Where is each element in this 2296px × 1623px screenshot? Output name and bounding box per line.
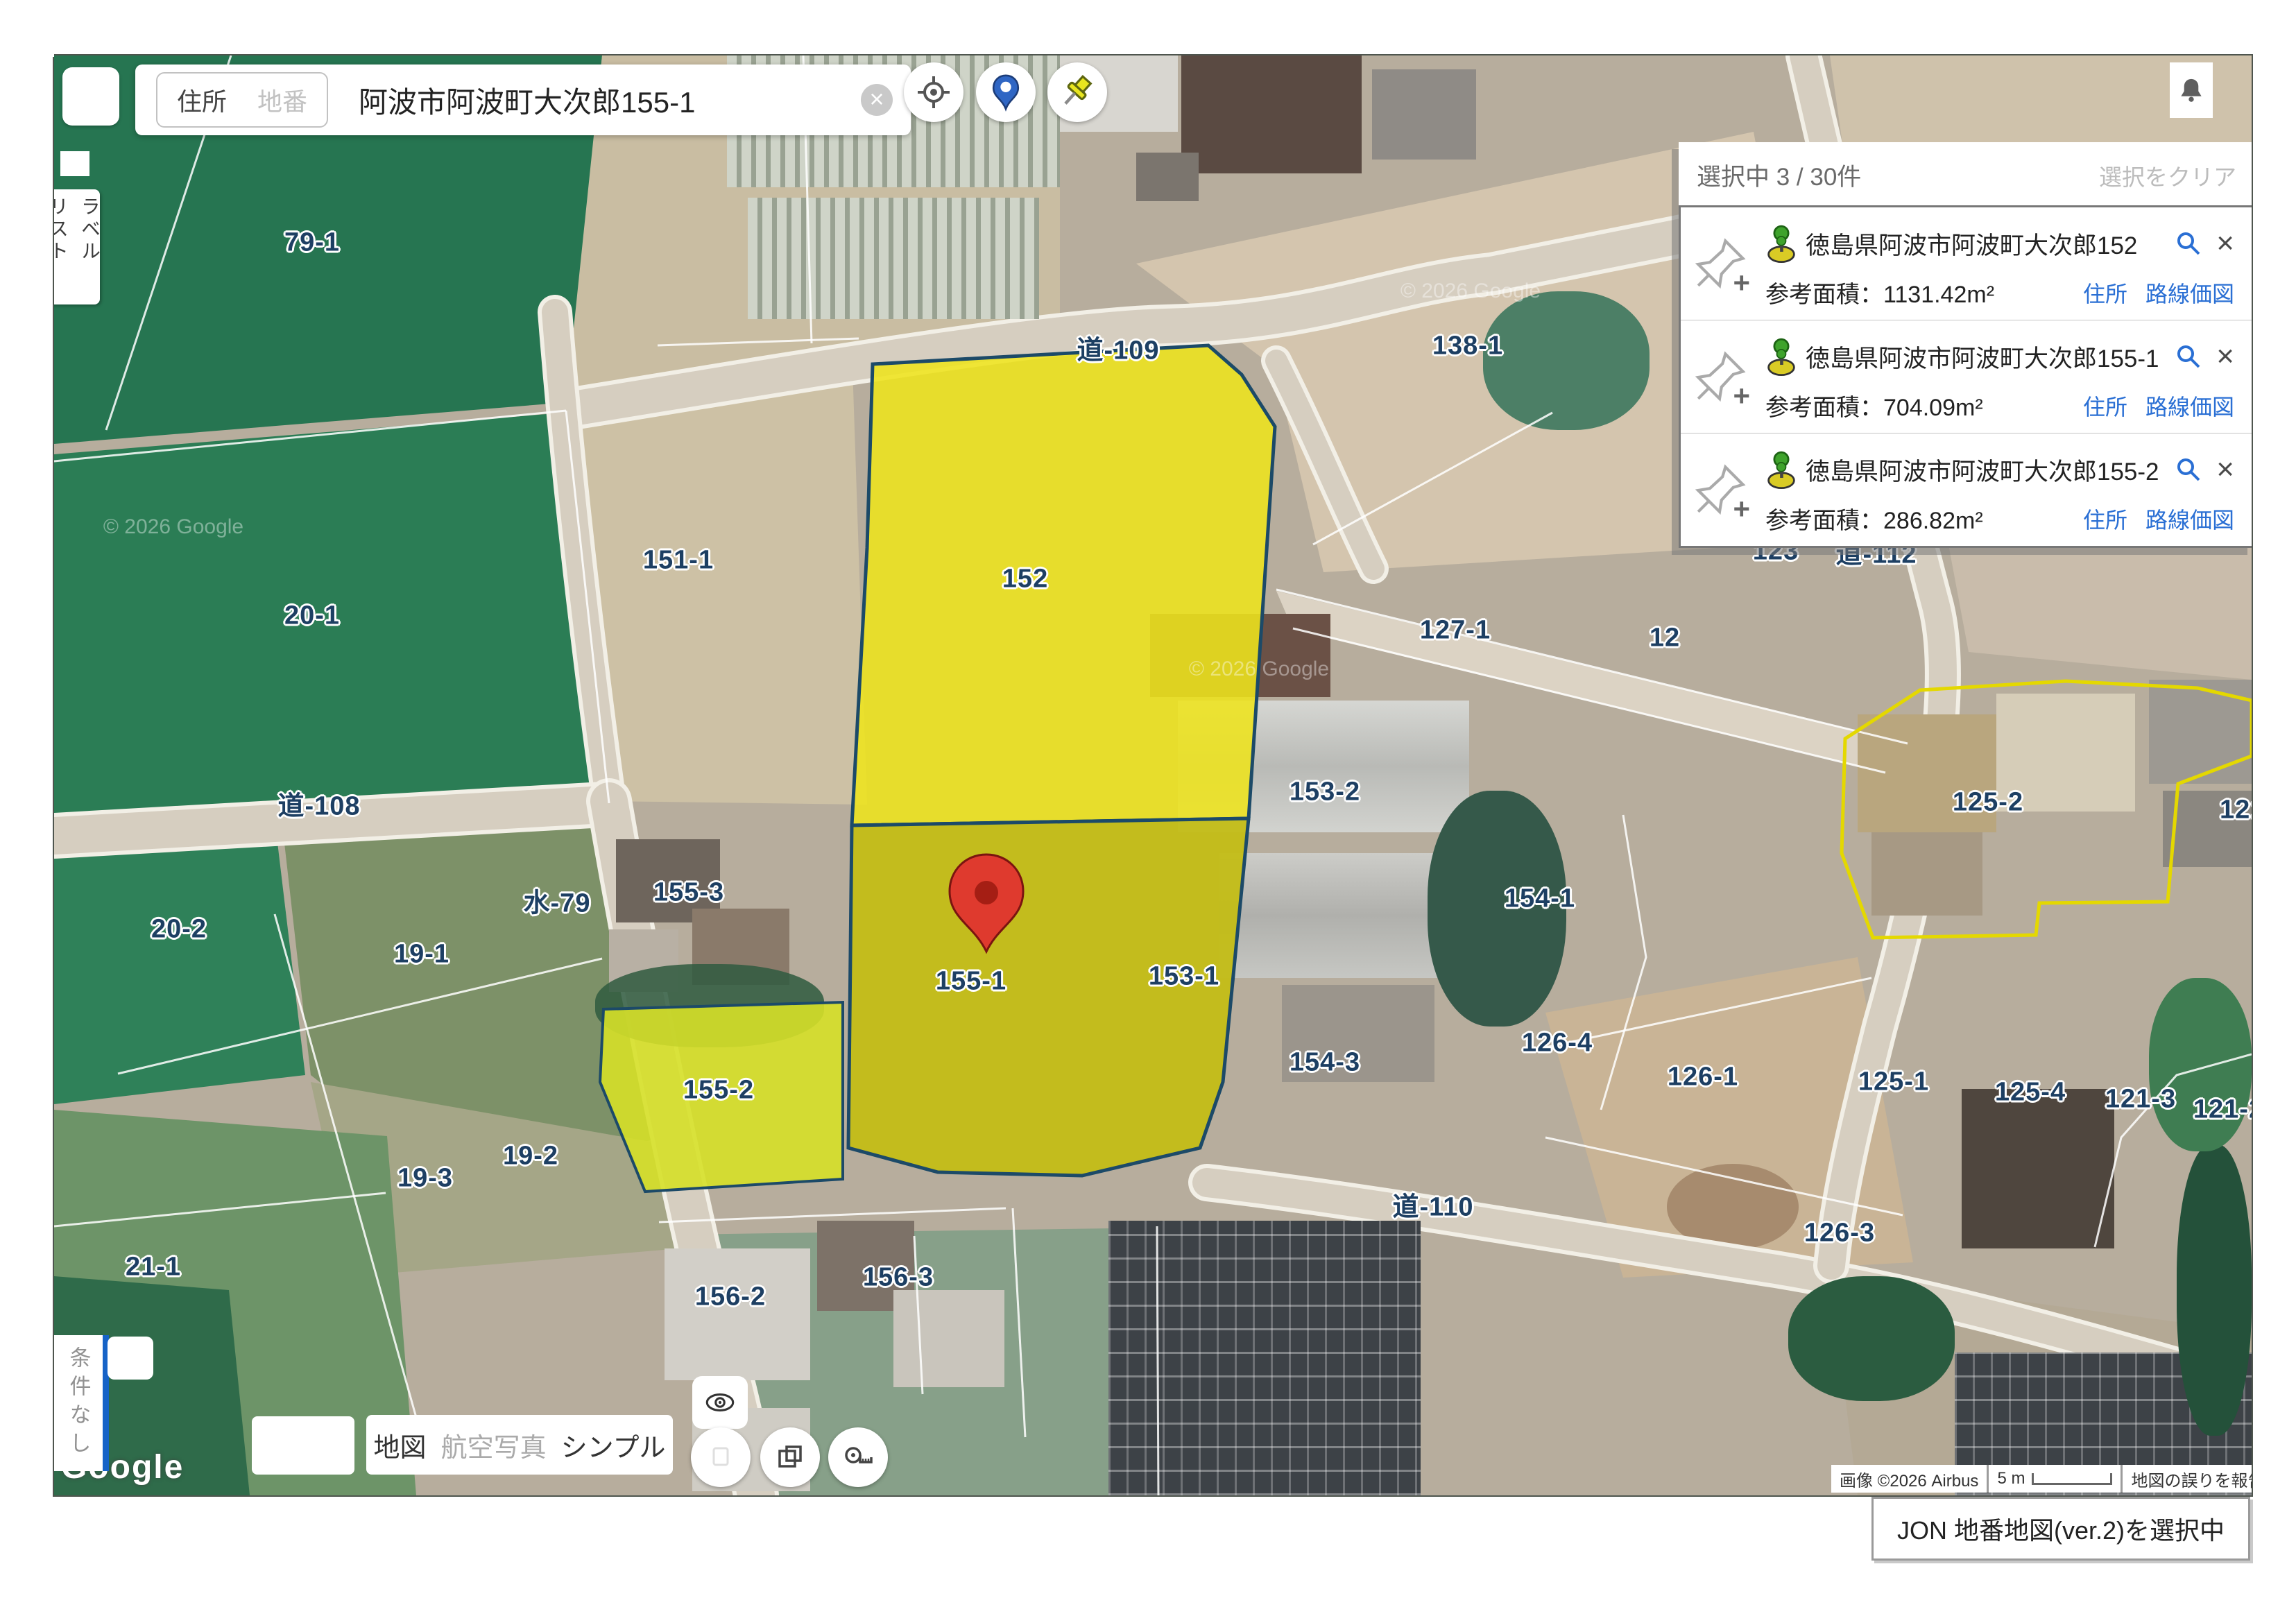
address-link[interactable]: 住所 (2083, 503, 2127, 535)
map-version-status-box: JON 地番地図(ver.2)を選択中 (1871, 1497, 2250, 1561)
tree-pin-icon (1765, 449, 1797, 490)
notification-button[interactable] (2170, 62, 2213, 118)
add-pin-icon[interactable]: + (1690, 235, 1749, 293)
google-watermark: © 2026 Google (1189, 658, 1329, 681)
map-attribution: 画像 ©2026 Airbus 5 m 地図の誤りを報告する (1831, 1465, 2252, 1493)
map-label-155-2: 155-2 (683, 1076, 754, 1106)
map-type-map[interactable]: 地図 (374, 1426, 427, 1464)
parcel-area: 参考面積：286.82m² (1765, 501, 1983, 535)
yellow-pushpin-icon (1058, 73, 1097, 112)
map-label-154-3: 154-3 (1290, 1048, 1360, 1078)
map-label-20-2: 20-2 (151, 915, 207, 945)
map-label-153-1: 153-1 (1149, 962, 1219, 992)
zoom-to-parcel-icon[interactable] (2175, 456, 2202, 483)
map-label-道-108: 道-108 (277, 784, 360, 823)
map-label-121-3: 121-3 (2105, 1085, 2176, 1115)
clear-selection-button[interactable]: 選択をクリア (2099, 159, 2236, 192)
selection-count: 選択中 3 / 30件 (1697, 157, 1861, 193)
add-pin-icon[interactable]: + (1690, 461, 1749, 519)
map-label-19-1: 19-1 (394, 940, 449, 970)
map-label-126-3: 126-3 (1804, 1219, 1875, 1248)
route-price-map-link[interactable]: 路線価図 (2145, 390, 2234, 422)
map-label-121-: 121- (2220, 796, 2252, 825)
zoom-to-parcel-icon[interactable] (2175, 230, 2202, 257)
map-label-12: 12 (1650, 624, 1680, 653)
crosshair-icon (916, 74, 952, 110)
scale-label: 5 m (1997, 1469, 2025, 1488)
measure-button[interactable] (828, 1427, 888, 1487)
parcel-address: 徳島県阿波市阿波町大次郎155-1 (1806, 339, 2159, 375)
selection-panel: 選択中 3 / 30件 選択をクリア + 徳島県阿波市阿波町大次郎152 (1679, 142, 2252, 548)
remove-parcel-icon[interactable]: × (2216, 341, 2234, 372)
layers-button[interactable] (760, 1427, 820, 1487)
tab-address[interactable]: 住所 (177, 82, 227, 118)
report-map-error-link[interactable]: 地図の誤りを報告する (2123, 1465, 2252, 1493)
map-label-19-2: 19-2 (503, 1142, 558, 1171)
top-left-blank-button[interactable] (62, 67, 119, 126)
address-link[interactable]: 住所 (2083, 277, 2127, 309)
map-label-126-4: 126-4 (1522, 1029, 1593, 1058)
map-type-simple[interactable]: シンプル (561, 1426, 666, 1464)
plus-icon: + (1733, 381, 1750, 411)
bell-icon (2176, 74, 2207, 107)
map-label-道-110: 道-110 (1393, 1185, 1474, 1223)
map-label-126-1: 126-1 (1668, 1063, 1738, 1092)
parcel-address: 徳島県阿波市阿波町大次郎152 (1806, 226, 2137, 261)
filter-condition-tab[interactable]: 条件なし (54, 1335, 109, 1471)
map-label-152: 152 (1002, 565, 1048, 594)
tree-pin-icon (1765, 223, 1797, 264)
google-watermark: © 2026 Google (1400, 280, 1541, 303)
imagery-credit: 画像 ©2026 Airbus (1831, 1465, 1987, 1493)
map-label-138-1: 138-1 (1432, 332, 1503, 361)
selection-list: + 徳島県阿波市阿波町大次郎152 × 参考面積：113 (1679, 205, 2252, 548)
address-link[interactable]: 住所 (2083, 390, 2127, 422)
marker-mode-button[interactable] (976, 62, 1036, 122)
google-watermark: © 2026 Google (103, 515, 243, 539)
parcel-area: 参考面積：1131.42m² (1765, 275, 1994, 309)
route-price-map-link[interactable]: 路線価図 (2145, 277, 2234, 309)
scale-bar (2032, 1473, 2112, 1485)
map-type-aerial[interactable]: 航空写真 (441, 1426, 547, 1464)
search-mode-tabs[interactable]: 住所 地番 (156, 72, 328, 128)
map-marker-icon (988, 73, 1024, 112)
scanned-page: 79-1151-1道-109138-115220-1道-108水-79155-3… (0, 0, 2296, 1623)
map-label-19-3: 19-3 (397, 1164, 453, 1194)
map-label-125-4: 125-4 (1995, 1078, 2066, 1108)
locate-button[interactable] (904, 62, 963, 122)
map-label-79-1: 79-1 (284, 228, 340, 258)
layers-icon (774, 1441, 806, 1473)
plus-icon: + (1733, 495, 1750, 524)
visibility-button[interactable] (692, 1376, 748, 1429)
zoom-to-parcel-icon[interactable] (2175, 343, 2202, 370)
small-white-square (60, 151, 89, 176)
remove-parcel-icon[interactable]: × (2216, 454, 2234, 485)
map-label-121-2: 121-2 (2193, 1095, 2252, 1125)
map-label-道-109: 道-109 (1077, 329, 1159, 367)
clear-search-icon[interactable]: × (861, 84, 893, 116)
add-pin-icon[interactable]: + (1690, 348, 1749, 406)
map-label-20-1: 20-1 (284, 601, 340, 631)
tree-pin-icon (1765, 336, 1797, 377)
remove-parcel-icon[interactable]: × (2216, 228, 2234, 259)
parcel-list-item[interactable]: + 徳島県阿波市阿波町大次郎155-2 × 参考面積：2 (1681, 433, 2252, 546)
search-input[interactable]: 阿波市阿波町大次郎155-1 (359, 79, 861, 121)
selection-panel-header: 選択中 3 / 30件 選択をクリア (1679, 142, 2252, 205)
parcel-list-item[interactable]: + 徳島県阿波市阿波町大次郎155-1 × 参考面積：7 (1681, 320, 2252, 433)
label-toggle[interactable]: ラベル (76, 196, 103, 304)
map-label-156-3: 156-3 (863, 1263, 934, 1293)
parcel-address: 徳島県阿波市阿波町大次郎155-2 (1806, 452, 2159, 488)
pushpin-mode-button[interactable] (1047, 62, 1107, 122)
list-toggle[interactable]: リスト (54, 196, 71, 304)
label-list-toggle[interactable]: ラベル リスト (54, 189, 100, 304)
map-label-151-1: 151-1 (643, 546, 714, 576)
small-white-square (108, 1337, 153, 1380)
filter-condition-label: 条件なし (63, 1346, 94, 1460)
map-label-154-1: 154-1 (1505, 884, 1575, 914)
plus-icon: + (1733, 268, 1750, 298)
tab-parcel-number[interactable]: 地番 (257, 82, 307, 118)
measuring-tape-icon (841, 1443, 875, 1471)
map-label-156-2: 156-2 (695, 1282, 766, 1312)
parcel-area: 参考面積：704.09m² (1765, 388, 1983, 422)
map-type-bar[interactable]: 地図 航空写真 シンプル (366, 1415, 673, 1475)
map-viewport[interactable]: 79-1151-1道-109138-115220-1道-108水-79155-3… (54, 55, 2252, 1495)
parcel-list-item[interactable]: + 徳島県阿波市阿波町大次郎152 × 参考面積：113 (1681, 207, 2252, 320)
map-label-125-2: 125-2 (1953, 788, 2023, 818)
scan-corner-square (28, 28, 54, 57)
faded-icon (705, 1442, 736, 1472)
eye-icon (702, 1391, 738, 1414)
map-label-21-1: 21-1 (126, 1253, 181, 1282)
map-label-155-1: 155-1 (936, 967, 1006, 997)
map-label-水-79: 水-79 (524, 882, 591, 920)
scale-control: 5 m (1989, 1465, 2121, 1493)
route-price-map-link[interactable]: 路線価図 (2145, 503, 2234, 535)
faded-tool-button[interactable] (691, 1427, 751, 1487)
map-label-153-2: 153-2 (1290, 778, 1360, 807)
map-label-155-3: 155-3 (653, 878, 724, 908)
bottom-blank-button[interactable] (252, 1416, 354, 1475)
map-label-125-1: 125-1 (1858, 1067, 1929, 1097)
map-label-127-1: 127-1 (1420, 616, 1491, 646)
search-bar[interactable]: 住所 地番 阿波市阿波町大次郎155-1 × (135, 65, 911, 135)
